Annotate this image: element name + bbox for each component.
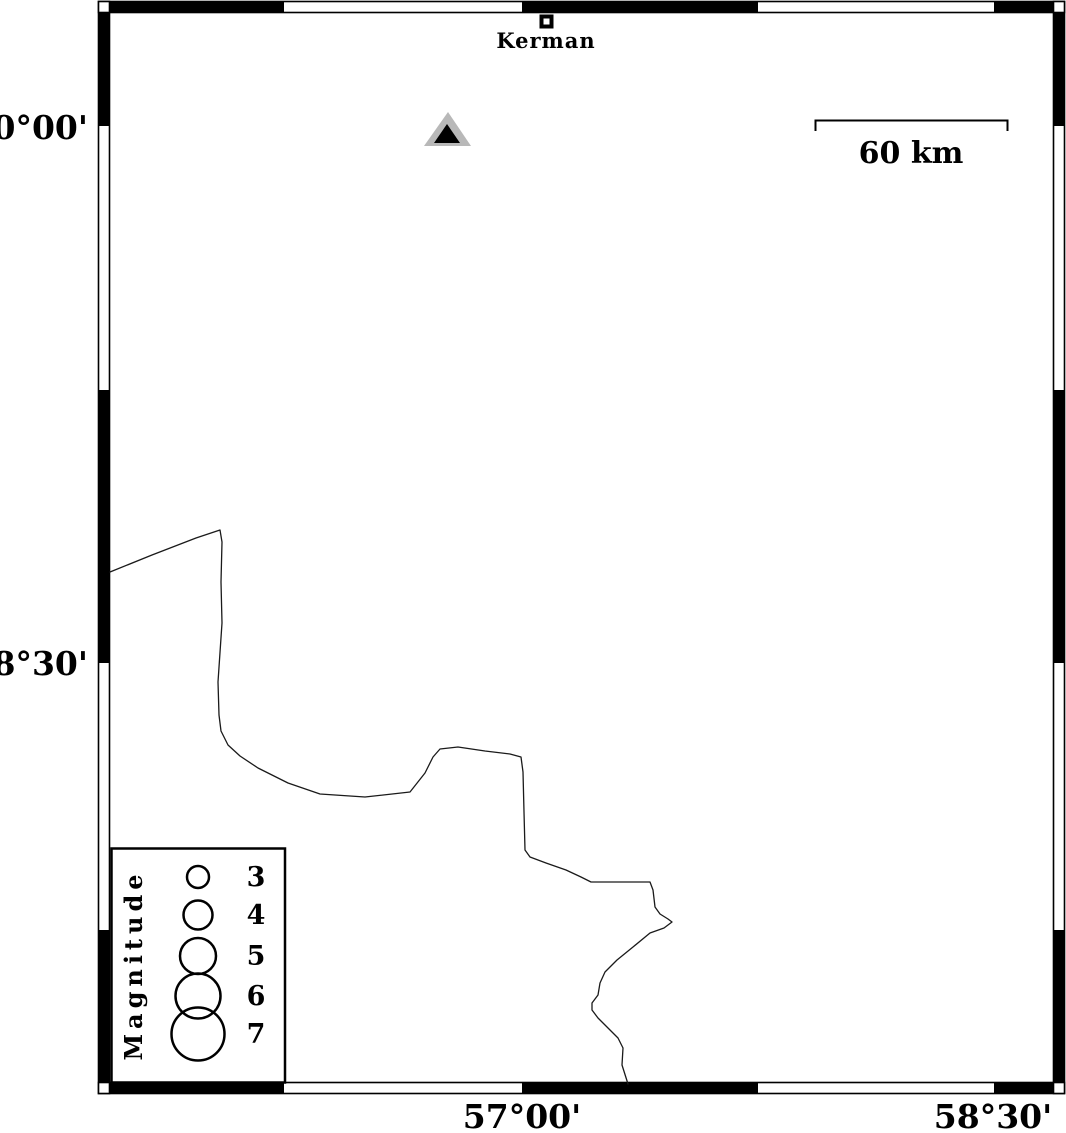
frame-segment-bottom [522,1083,758,1094]
frame-segment-left [99,390,110,663]
scale-bar: 60 km [816,121,1008,172]
legend-value-m3: 3 [247,862,266,893]
lon-label-57-00: 57°00' [463,1097,581,1133]
legend-value-m7: 7 [247,1019,266,1050]
city-label: Kerman [496,28,595,53]
frame-corner [1054,2,1065,13]
frame-segment-right [1054,13,1065,127]
frame-corner [99,2,110,13]
frame-segment-top [994,2,1054,13]
frame-segment-right [1054,390,1065,663]
lat-label-28-30: 28°30' [0,644,88,683]
map-canvas: 30°00' 28°30' 57°00' 58°30' Kerman 60 km… [0,0,1066,1133]
frame-segment-top [110,2,285,13]
frame-segment-right [1054,930,1065,1083]
frame-corner [99,1083,110,1094]
legend-value-m5: 5 [247,941,266,972]
frame-segment-left [99,13,110,127]
lon-label-58-30: 58°30' [934,1097,1052,1133]
legend-value-m6: 6 [247,981,266,1012]
scale-bar-bracket [816,121,1008,132]
magnitude-legend: Magnitude 3 4 5 6 7 [112,849,286,1083]
frame-segment-top [522,2,758,13]
frame-segment-bottom [994,1083,1054,1094]
city-square-marker [542,17,552,27]
city-kerman: Kerman [496,17,595,54]
frame-segment-bottom [110,1083,285,1094]
legend-title: Magnitude [119,869,148,1060]
frame-corner [1054,1083,1065,1094]
map-page: 30°00' 28°30' 57°00' 58°30' Kerman 60 km… [0,0,1066,1133]
lat-label-30-00: 30°00' [0,108,88,147]
frame-segment-left [99,930,110,1083]
scale-bar-label: 60 km [859,136,964,171]
station-triangle-marker [424,112,471,146]
legend-value-m4: 4 [247,900,266,931]
